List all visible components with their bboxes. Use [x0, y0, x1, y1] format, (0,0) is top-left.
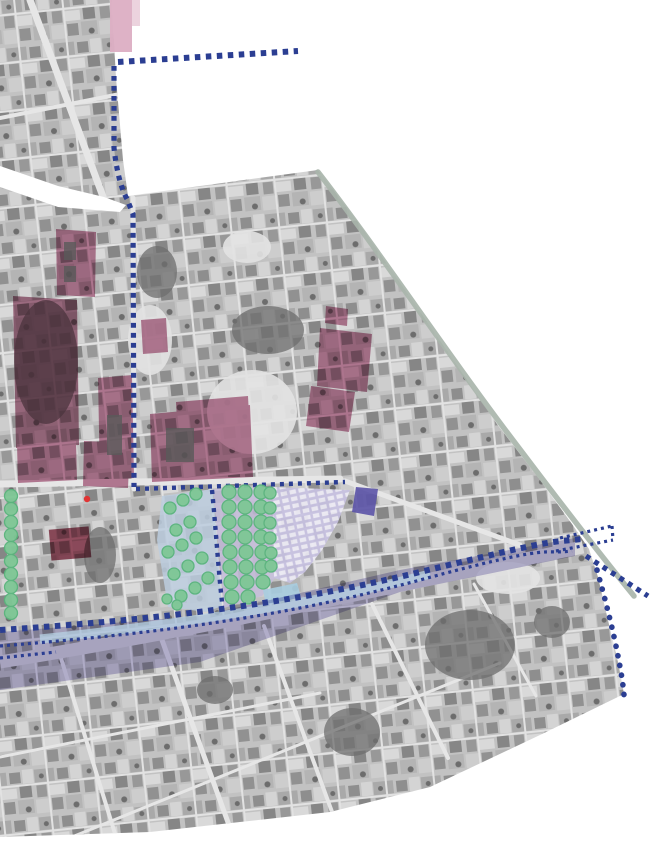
- dotted-line-top-horizontal: [118, 51, 298, 62]
- right-cluster-small: [325, 306, 348, 326]
- courtyard-complex: [56, 229, 96, 297]
- indigo-building: [352, 487, 378, 516]
- aerial-planning-map: [0, 0, 655, 850]
- map-canvas: [0, 0, 655, 850]
- top-pink-bar-annex: [132, 0, 140, 26]
- garden-block: [13, 296, 79, 448]
- right-cluster-lower: [306, 386, 355, 432]
- dark-red-building: [49, 526, 92, 560]
- top-pink-bar-group: [110, 0, 140, 52]
- central-complex: [150, 405, 253, 482]
- left-pair-b: [83, 441, 130, 488]
- right-cluster-upper: [317, 328, 372, 392]
- pink-building-pair: [141, 318, 168, 354]
- red-marker-dot: [84, 496, 90, 502]
- dotted-fork-connector: [612, 526, 613, 540]
- top-pink-bar: [110, 0, 132, 52]
- left-pair-a: [17, 441, 77, 483]
